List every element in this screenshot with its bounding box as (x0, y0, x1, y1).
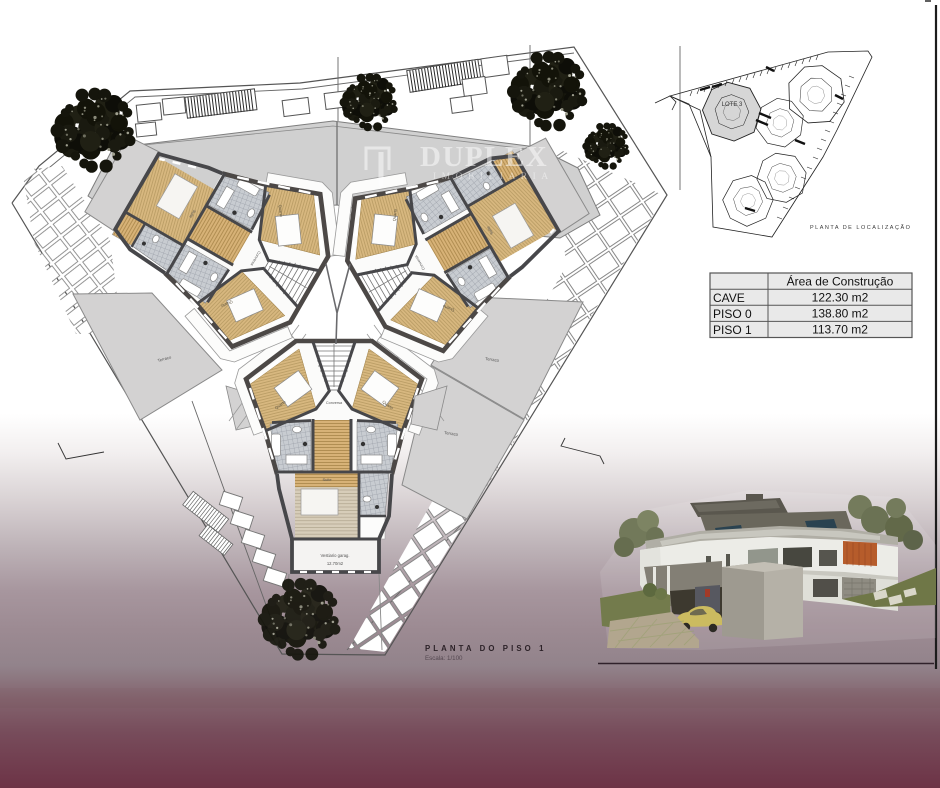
svg-text:PISO 0: PISO 0 (713, 307, 752, 321)
svg-text:Área de Construção: Área de Construção (787, 274, 894, 289)
svg-text:PISO 1: PISO 1 (713, 323, 752, 337)
svg-text:113.70 m2: 113.70 m2 (812, 323, 868, 337)
svg-text:Conversa: Conversa (326, 401, 343, 405)
svg-text:PLANTA DE LOCALIZAÇÃO: PLANTA DE LOCALIZAÇÃO (810, 224, 911, 231)
svg-text:LOTE 3: LOTE 3 (722, 102, 743, 108)
svg-text:CAVE: CAVE (713, 291, 745, 305)
svg-text:DUPLEX: DUPLEX (420, 141, 548, 173)
svg-text:122.30 m2: 122.30 m2 (812, 291, 869, 305)
svg-text:Escala: 1/100: Escala: 1/100 (425, 655, 463, 662)
svg-text:138.80 m2: 138.80 m2 (812, 307, 869, 321)
svg-text:IMOBILIARIA: IMOBILIARIA (433, 172, 554, 182)
svg-text:PLANTA DO PISO 1: PLANTA DO PISO 1 (425, 644, 547, 653)
